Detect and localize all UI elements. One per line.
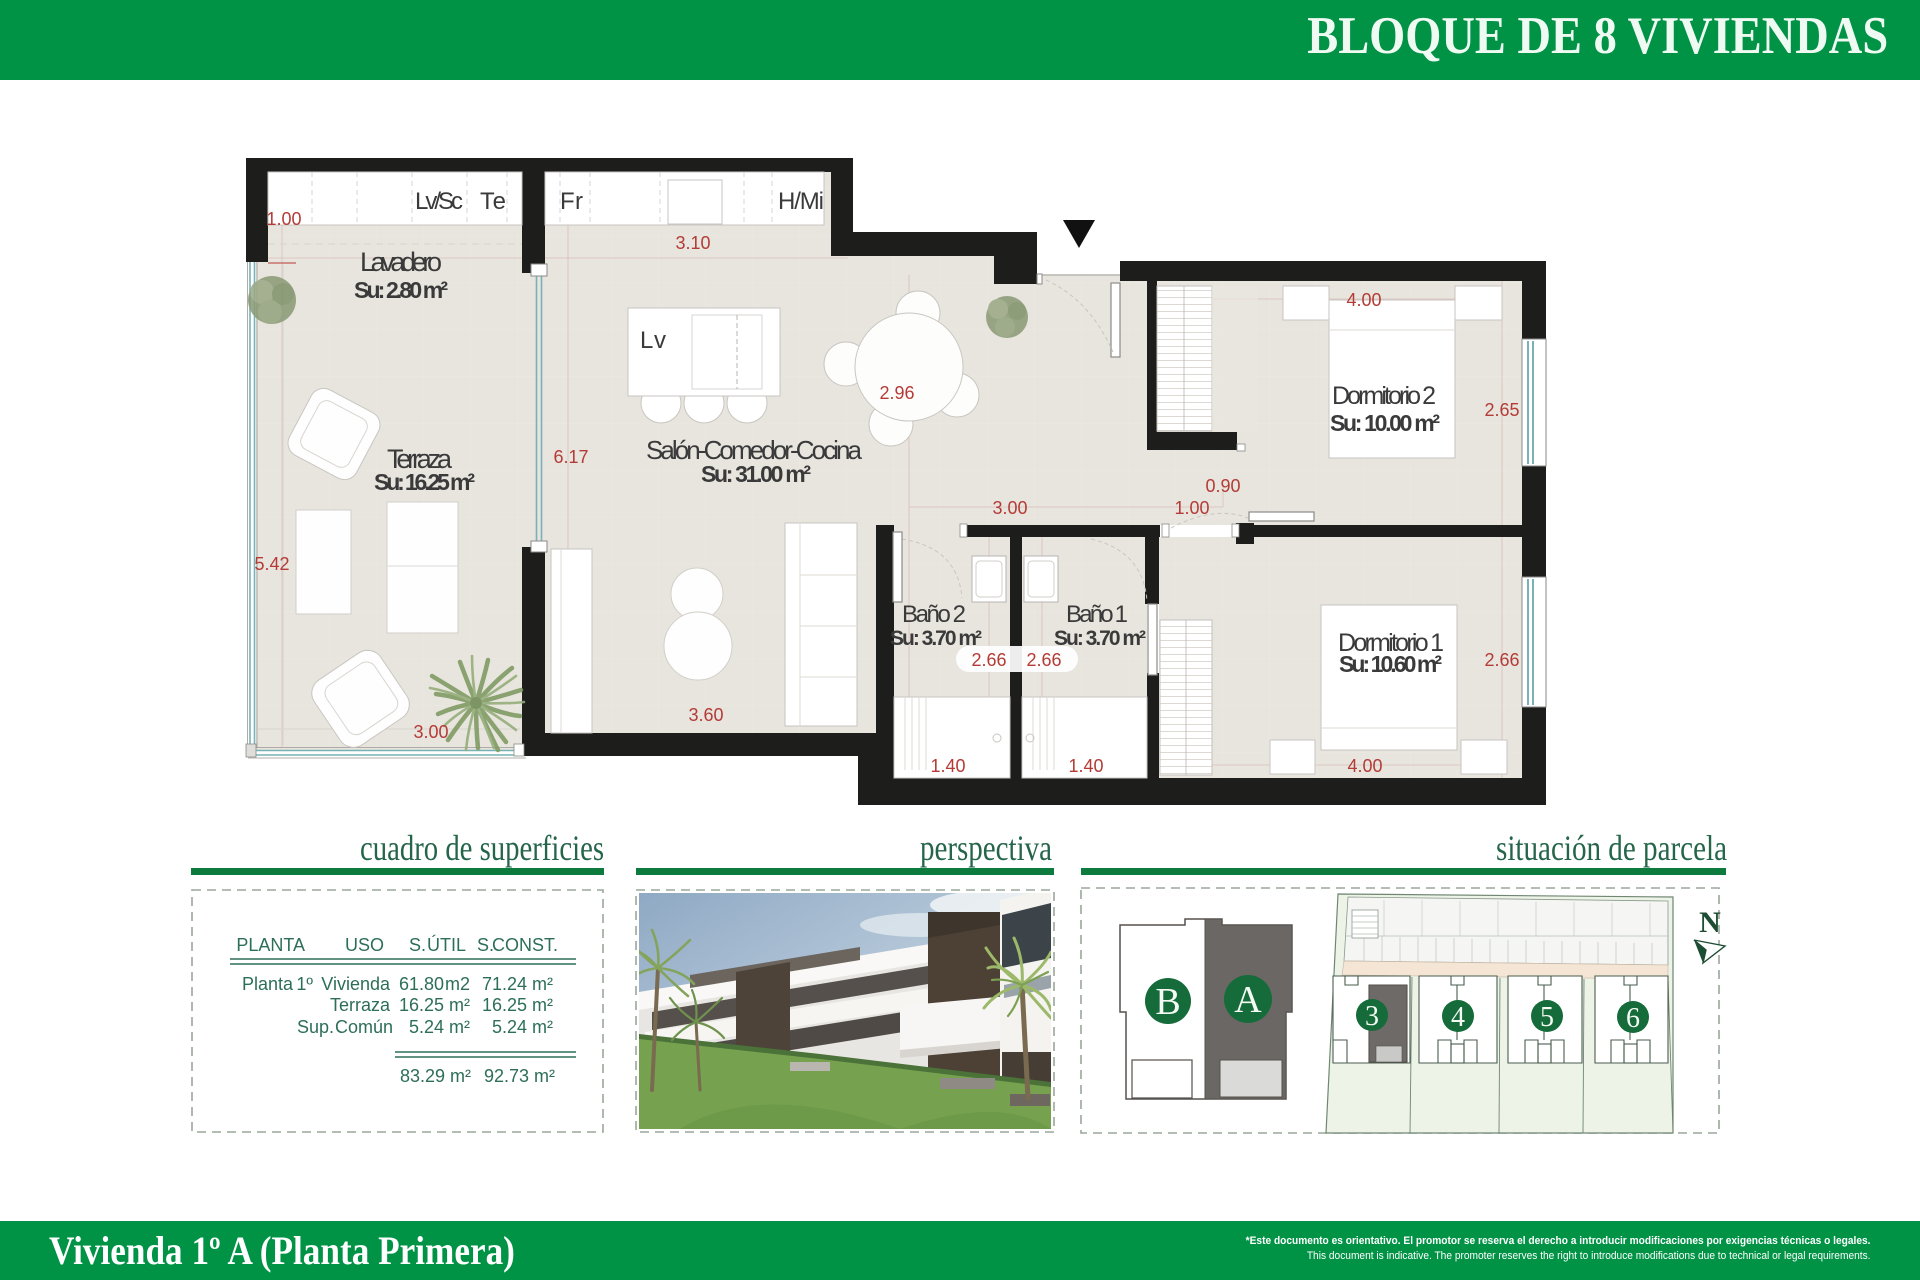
svg-text:2.65: 2.65 (1484, 400, 1519, 420)
svg-text:Su: 10.60 m²: Su: 10.60 m² (1339, 651, 1442, 677)
svg-text:CONST.: CONST. (492, 935, 558, 955)
svg-text:71.24: 71.24 (482, 974, 527, 994)
svg-text:perspectiva: perspectiva (920, 828, 1052, 868)
svg-text:1.40: 1.40 (1068, 756, 1103, 776)
svg-text:Su: 31.00 m²: Su: 31.00 m² (701, 461, 811, 487)
svg-text:ÚTIL: ÚTIL (427, 934, 466, 955)
svg-text:N: N (1699, 906, 1721, 939)
svg-text:m²: m² (450, 1066, 471, 1086)
svg-text:61.80: 61.80 (399, 974, 444, 994)
svg-text:3.10: 3.10 (675, 233, 710, 253)
svg-text:H/Mi: H/Mi (778, 188, 824, 215)
svg-text:92.73: 92.73 (484, 1066, 529, 1086)
svg-text:m²: m² (532, 995, 553, 1015)
svg-text:Su: 10.00 m²: Su: 10.00 m² (1330, 410, 1440, 436)
svg-text:m²: m² (534, 1066, 555, 1086)
svg-text:PLANTA: PLANTA (236, 935, 305, 955)
svg-text:16.25: 16.25 (399, 995, 444, 1015)
svg-text:2.66: 2.66 (1026, 650, 1061, 670)
svg-text:Lv: Lv (640, 327, 666, 354)
svg-text:Lavadero: Lavadero (360, 247, 442, 277)
svg-text:5.24: 5.24 (409, 1017, 444, 1037)
svg-text:USO: USO (345, 935, 384, 955)
svg-text:Sup.: Sup. (297, 1017, 334, 1037)
svg-text:Su: 2.80 m²: Su: 2.80 m² (354, 277, 448, 303)
svg-text:Planta: Planta (242, 974, 294, 994)
svg-text:Baño 1: Baño 1 (1066, 601, 1128, 628)
svg-text:3.00: 3.00 (992, 498, 1027, 518)
svg-text:3: 3 (1365, 1001, 1379, 1032)
svg-text:S.: S. (409, 935, 426, 955)
svg-text:Vivienda: Vivienda (321, 974, 391, 994)
svg-text:situación de parcela: situación de parcela (1496, 828, 1727, 868)
svg-text:cuadro de superficies: cuadro de superficies (360, 828, 604, 868)
svg-text:2.66: 2.66 (971, 650, 1006, 670)
svg-text:m2: m2 (445, 974, 470, 994)
svg-text:Su: 16.25 m²: Su: 16.25 m² (374, 469, 475, 495)
svg-text:5.24: 5.24 (492, 1017, 527, 1037)
svg-text:m²: m² (532, 1017, 553, 1037)
svg-text:6.17: 6.17 (553, 447, 588, 467)
svg-text:5: 5 (1540, 1002, 1554, 1033)
svg-text:m²: m² (449, 1017, 470, 1037)
svg-text:m²: m² (449, 995, 470, 1015)
svg-text:83.29: 83.29 (400, 1066, 445, 1086)
svg-text:Común: Común (335, 1017, 393, 1037)
svg-text:B: B (1155, 981, 1180, 1023)
svg-text:16.25: 16.25 (482, 995, 527, 1015)
svg-text:5.42: 5.42 (254, 554, 289, 574)
svg-text:1.00: 1.00 (266, 209, 301, 229)
svg-text:Baño 2: Baño 2 (902, 601, 966, 628)
svg-text:Terraza: Terraza (330, 995, 391, 1015)
svg-text:4.00: 4.00 (1347, 756, 1382, 776)
svg-text:m²: m² (532, 974, 553, 994)
svg-text:1.40: 1.40 (930, 756, 965, 776)
svg-text:Fr: Fr (560, 188, 583, 215)
svg-text:Dormitorio 2: Dormitorio 2 (1332, 382, 1436, 410)
svg-text:4: 4 (1451, 1002, 1465, 1033)
svg-text:3.60: 3.60 (688, 705, 723, 725)
svg-text:A: A (1234, 979, 1262, 1021)
svg-text:1º: 1º (296, 974, 313, 994)
svg-text:Lv/Sc: Lv/Sc (415, 188, 463, 215)
svg-text:Te: Te (480, 188, 506, 215)
svg-text:0.90: 0.90 (1205, 476, 1240, 496)
svg-text:3.00: 3.00 (413, 722, 448, 742)
svg-text:4.00: 4.00 (1346, 290, 1381, 310)
svg-text:2.66: 2.66 (1484, 650, 1519, 670)
svg-text:1.00: 1.00 (1174, 498, 1209, 518)
svg-text:6: 6 (1626, 1003, 1640, 1034)
svg-text:2.96: 2.96 (879, 383, 914, 403)
